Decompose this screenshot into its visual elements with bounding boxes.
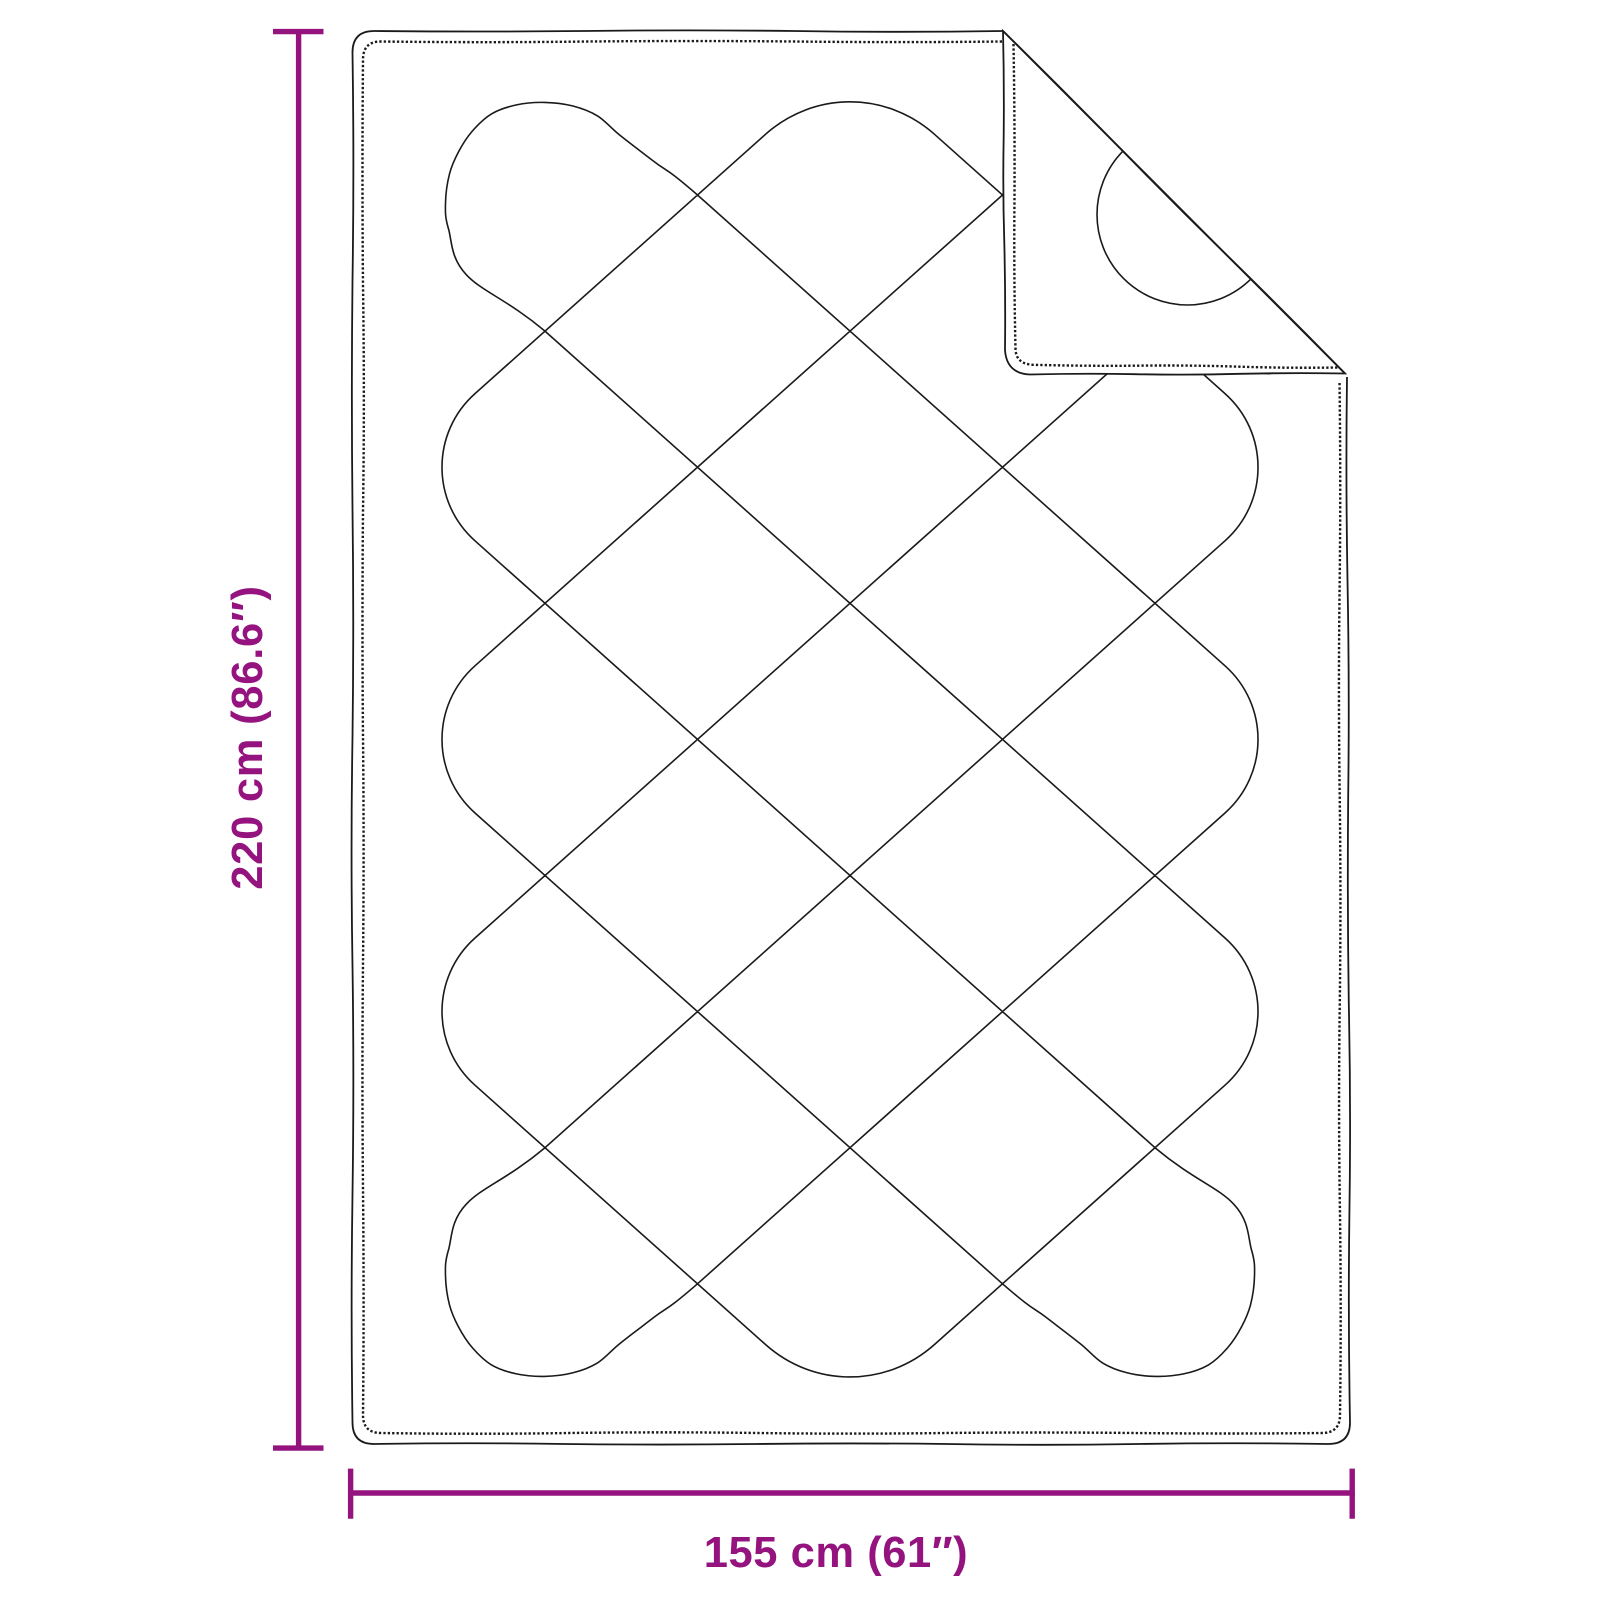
svg-text:155 cm (61″): 155 cm (61″) bbox=[704, 1529, 968, 1577]
svg-text:220 cm (86.6″): 220 cm (86.6″) bbox=[224, 585, 272, 890]
